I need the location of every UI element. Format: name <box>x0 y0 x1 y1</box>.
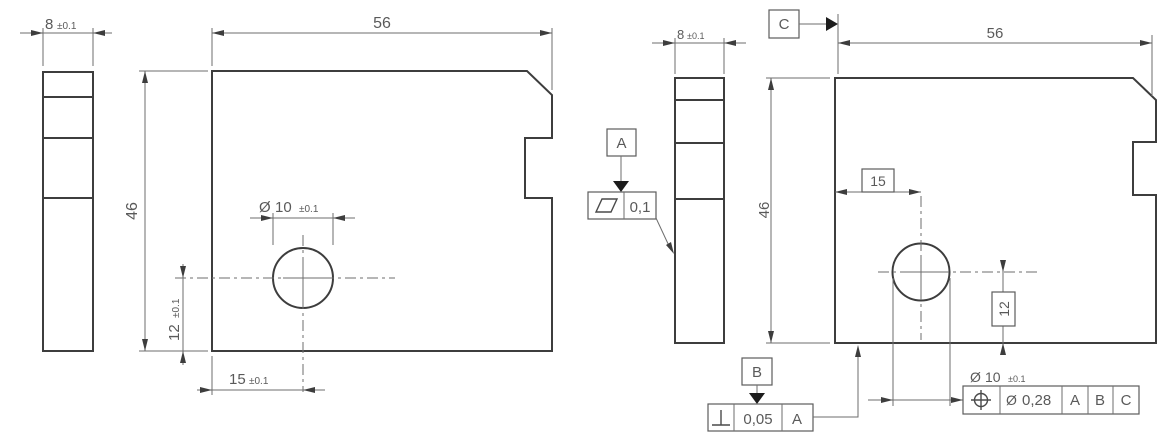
left-side-view <box>43 72 93 351</box>
right-hole-x-value: 15 <box>870 173 886 189</box>
datum-c-triangle-icon <box>826 17 838 31</box>
flatness-fcf: 0,1 <box>588 192 674 254</box>
datum-a-label: A <box>616 135 626 152</box>
left-hole-x-tol: ±0.1 <box>249 376 269 387</box>
left-hole-dia-tol: ±0.1 <box>299 204 319 215</box>
right-width-value: 56 <box>987 25 1004 42</box>
flatness-value: 0,1 <box>630 199 651 216</box>
left-hole-y-value: 12 <box>166 324 183 341</box>
position-datum-2: B <box>1095 392 1105 409</box>
datum-c-flag: C <box>769 10 838 38</box>
position-datum-3: C <box>1121 392 1132 409</box>
perpendicularity-value: 0,05 <box>743 411 772 428</box>
drawing-canvas: 8 ±0.1 56 46 Ø 10 <box>0 0 1172 438</box>
right-height-value: 46 <box>756 202 773 219</box>
datum-b-flag: B <box>742 358 772 404</box>
left-thickness-tol: ±0.1 <box>57 21 77 32</box>
left-hole-x-dim: 15 ±0.1 <box>197 356 325 395</box>
right-hole-dia-tol: ±0.1 <box>1008 374 1025 384</box>
right-thickness-tol: ±0.1 <box>687 31 704 41</box>
position-dia-symbol: Ø <box>1006 392 1017 408</box>
position-fcf: Ø 0,28 A B C <box>963 386 1139 414</box>
datum-c-label: C <box>779 16 790 33</box>
left-front-view <box>175 71 552 392</box>
left-hole-y-dim: 12 ±0.1 <box>166 264 186 365</box>
left-hole-dia-value: 10 <box>275 199 292 216</box>
datum-b-label: B <box>752 364 762 381</box>
datum-b-triangle-icon <box>749 393 765 404</box>
right-thickness-dim: 8 ±0.1 <box>652 27 746 74</box>
datum-a-triangle-icon <box>613 181 629 192</box>
datum-a-flag: A <box>607 129 636 192</box>
right-side-view <box>675 78 724 343</box>
right-hole-dia-value: 10 <box>985 369 1001 385</box>
right-thickness-value: 8 <box>677 27 684 42</box>
left-height-dim: 46 <box>124 71 208 351</box>
right-hole-dia-symbol: Ø <box>970 369 981 385</box>
left-drawing: 8 ±0.1 56 46 Ø 10 <box>20 15 552 395</box>
position-datum-1: A <box>1070 392 1080 409</box>
engineering-drawing: 8 ±0.1 56 46 Ø 10 <box>0 0 1172 438</box>
left-width-value: 56 <box>373 15 391 32</box>
left-height-value: 46 <box>124 202 141 220</box>
position-value: 0,28 <box>1022 392 1051 409</box>
left-hole-x-value: 15 <box>229 371 246 388</box>
left-hole-y-tol: ±0.1 <box>171 298 182 318</box>
right-height-dim: 46 <box>756 78 830 343</box>
left-hole-dia-symbol: Ø <box>259 199 271 216</box>
perpendicularity-fcf: 0,05 A <box>708 345 861 431</box>
left-thickness-value: 8 <box>45 16 53 33</box>
left-thickness-dim: 8 ±0.1 <box>20 16 112 66</box>
perpendicularity-datum: A <box>792 411 802 428</box>
right-drawing: 8 ±0.1 C 56 46 <box>588 10 1156 431</box>
right-hole-y-value: 12 <box>996 301 1012 317</box>
